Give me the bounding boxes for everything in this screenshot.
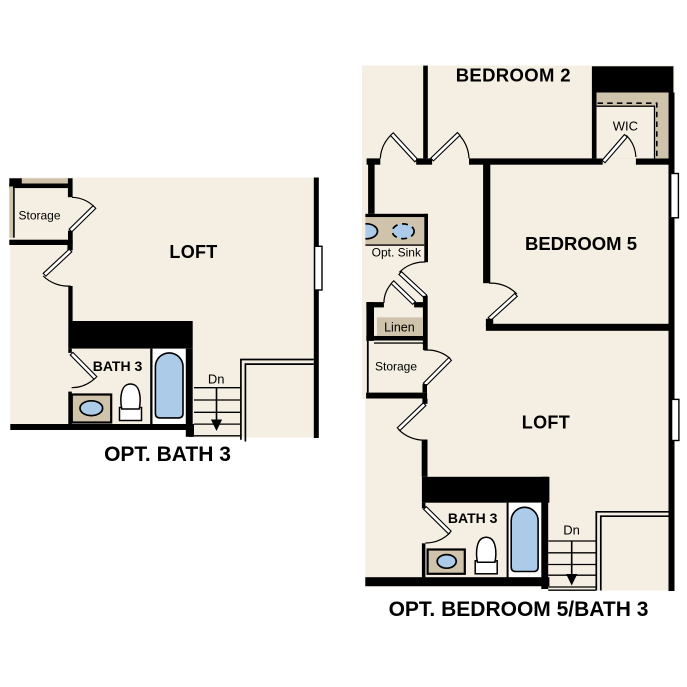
svg-text:BATH 3: BATH 3	[93, 358, 143, 374]
svg-text:Storage: Storage	[18, 208, 60, 222]
svg-text:BEDROOM 2: BEDROOM 2	[456, 65, 571, 86]
svg-text:Dn: Dn	[208, 371, 225, 386]
svg-text:Storage: Storage	[375, 359, 417, 373]
svg-text:BATH 3: BATH 3	[448, 510, 498, 526]
svg-text:Linen: Linen	[384, 320, 415, 334]
svg-text:Opt. Sink: Opt. Sink	[372, 245, 422, 259]
svg-text:LOFT: LOFT	[522, 412, 570, 432]
svg-text:BEDROOM 5: BEDROOM 5	[525, 233, 637, 254]
svg-text:OPT. BATH 3: OPT. BATH 3	[104, 443, 231, 466]
svg-text:WIC: WIC	[613, 118, 638, 133]
svg-text:Dn: Dn	[563, 523, 580, 538]
svg-text:LOFT: LOFT	[169, 242, 217, 262]
svg-text:OPT. BEDROOM 5/BATH 3: OPT. BEDROOM 5/BATH 3	[389, 598, 649, 621]
